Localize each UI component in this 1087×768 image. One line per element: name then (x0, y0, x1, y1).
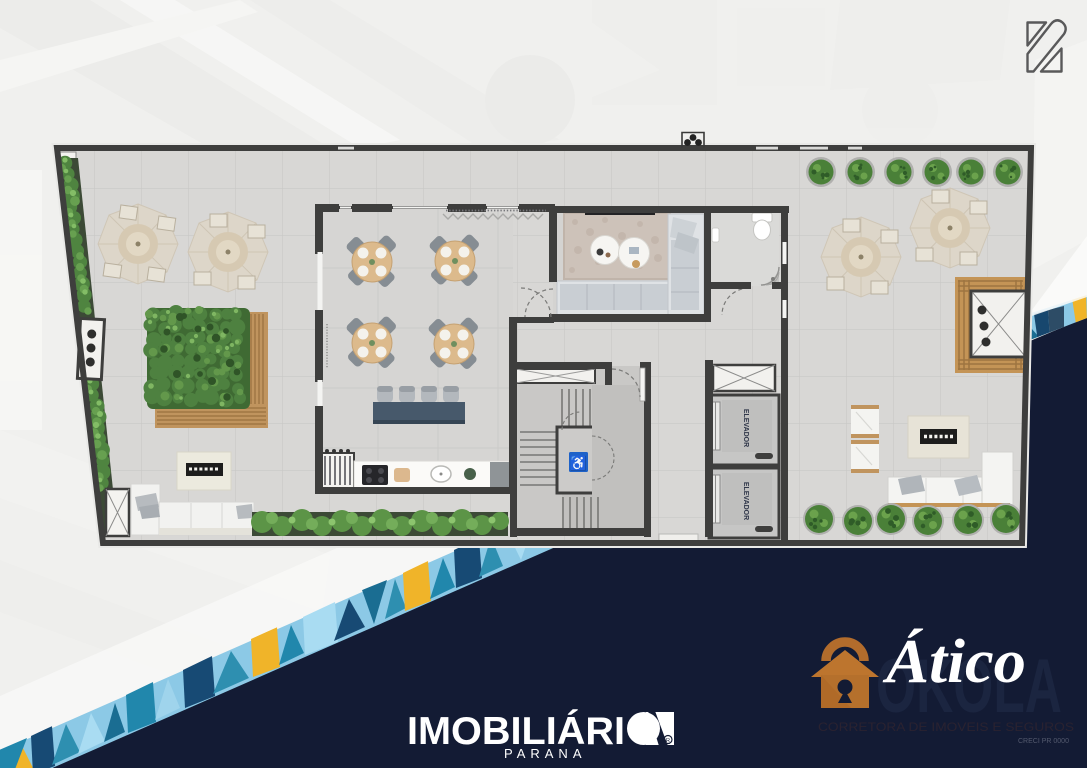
svg-text:CORRETORA DE IMOVEIS E SEGUROS: CORRETORA DE IMOVEIS E SEGUROS (818, 720, 1074, 734)
svg-text:Ático: Ático (882, 628, 1026, 696)
svg-text:R: R (666, 738, 670, 744)
svg-text:ELEVADOR: ELEVADOR (742, 482, 749, 520)
svg-text:PARANA: PARANA (504, 746, 587, 761)
svg-text:♿: ♿ (570, 455, 587, 472)
svg-text:CRECI PR 0000: CRECI PR 0000 (1018, 738, 1069, 745)
svg-text:ELEVADOR: ELEVADOR (742, 409, 749, 447)
